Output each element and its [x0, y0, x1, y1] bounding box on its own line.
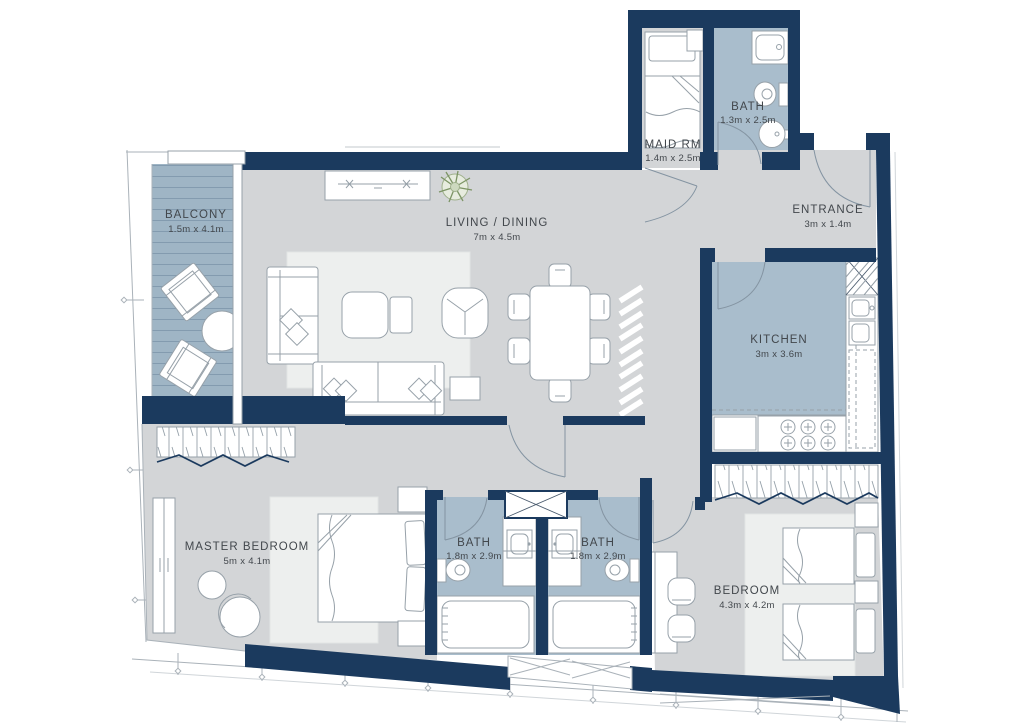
tv-console-icon [325, 171, 430, 200]
stove-icon [712, 415, 846, 452]
floor-plan: BALCONY 1.5m x 4.1m LIVING / DINING 7m x… [0, 0, 1024, 724]
room-dims-master-bedroom: 5m x 4.1m [223, 556, 270, 567]
toilet-icon [437, 559, 470, 582]
room-label-bedroom: BEDROOM [714, 585, 780, 597]
room-dims-living-dining: 7m x 4.5m [473, 232, 520, 243]
room-dims-entrance: 3m x 1.4m [804, 219, 851, 230]
accent-chair-icon [442, 288, 488, 338]
room-label-kitchen: KITCHEN [750, 334, 807, 346]
bathtub-icon [437, 596, 534, 653]
twin-bed-icon [783, 528, 875, 584]
kitchen-counter-icon [846, 258, 878, 452]
corridor-floor [640, 262, 703, 502]
room-dims-shared-bath: 1.8m x 2.9m [570, 551, 626, 562]
room-label-shared-bath: BATH [581, 537, 615, 549]
balcony-rail [168, 151, 245, 164]
shaft-icon [505, 491, 567, 518]
twin-bed-icon [783, 604, 875, 660]
nightstand-icon [855, 581, 878, 603]
desk-chair-icon [668, 578, 695, 605]
room-label-living-dining: LIVING / DINING [446, 217, 549, 229]
toilet-icon [605, 559, 639, 582]
room-label-entrance: ENTRANCE [792, 204, 863, 216]
floor-plan-drawing: BALCONY 1.5m x 4.1m LIVING / DINING 7m x… [0, 0, 1024, 724]
room-dims-balcony: 1.5m x 4.1m [168, 224, 224, 235]
maid-room-furniture [645, 30, 703, 148]
coffee-table-icon [342, 292, 388, 338]
desk-chair-icon [668, 615, 695, 642]
balcony-glass-rail [233, 164, 242, 424]
wardrobe-icon [715, 465, 878, 504]
vanity-sink-icon [503, 517, 536, 586]
nightstand-icon [398, 487, 427, 512]
room-dims-master-bath: 1.8m x 2.9m [446, 551, 502, 562]
room-dims-maid-bath: 1.3m x 2.5m [720, 115, 776, 126]
double-bed-icon [318, 514, 427, 622]
room-dims-kitchen: 3m x 3.6m [755, 349, 802, 360]
room-label-master-bath: BATH [457, 537, 491, 549]
bedside-shelf-icon [687, 30, 703, 51]
ledge-hatched [508, 656, 632, 689]
room-dims-bedroom: 4.3m x 4.2m [719, 600, 775, 611]
shower-icon [752, 31, 788, 64]
nightstand-icon [398, 621, 427, 646]
room-label-balcony: BALCONY [165, 209, 227, 221]
room-label-master-bedroom: MASTER BEDROOM [185, 541, 310, 553]
nightstand-icon [855, 503, 878, 527]
side-table-icon [390, 297, 412, 333]
room-dims-maid-room: 1.4m x 2.5m [645, 153, 701, 164]
sofa-icon [267, 267, 318, 364]
room-label-maid-room: MAID RM [645, 139, 702, 151]
side-table-icon [198, 571, 226, 599]
side-table-icon [450, 377, 480, 400]
dresser-icon [153, 498, 175, 633]
room-label-maid-bath: BATH [731, 101, 765, 113]
bathtub-icon [548, 596, 640, 653]
